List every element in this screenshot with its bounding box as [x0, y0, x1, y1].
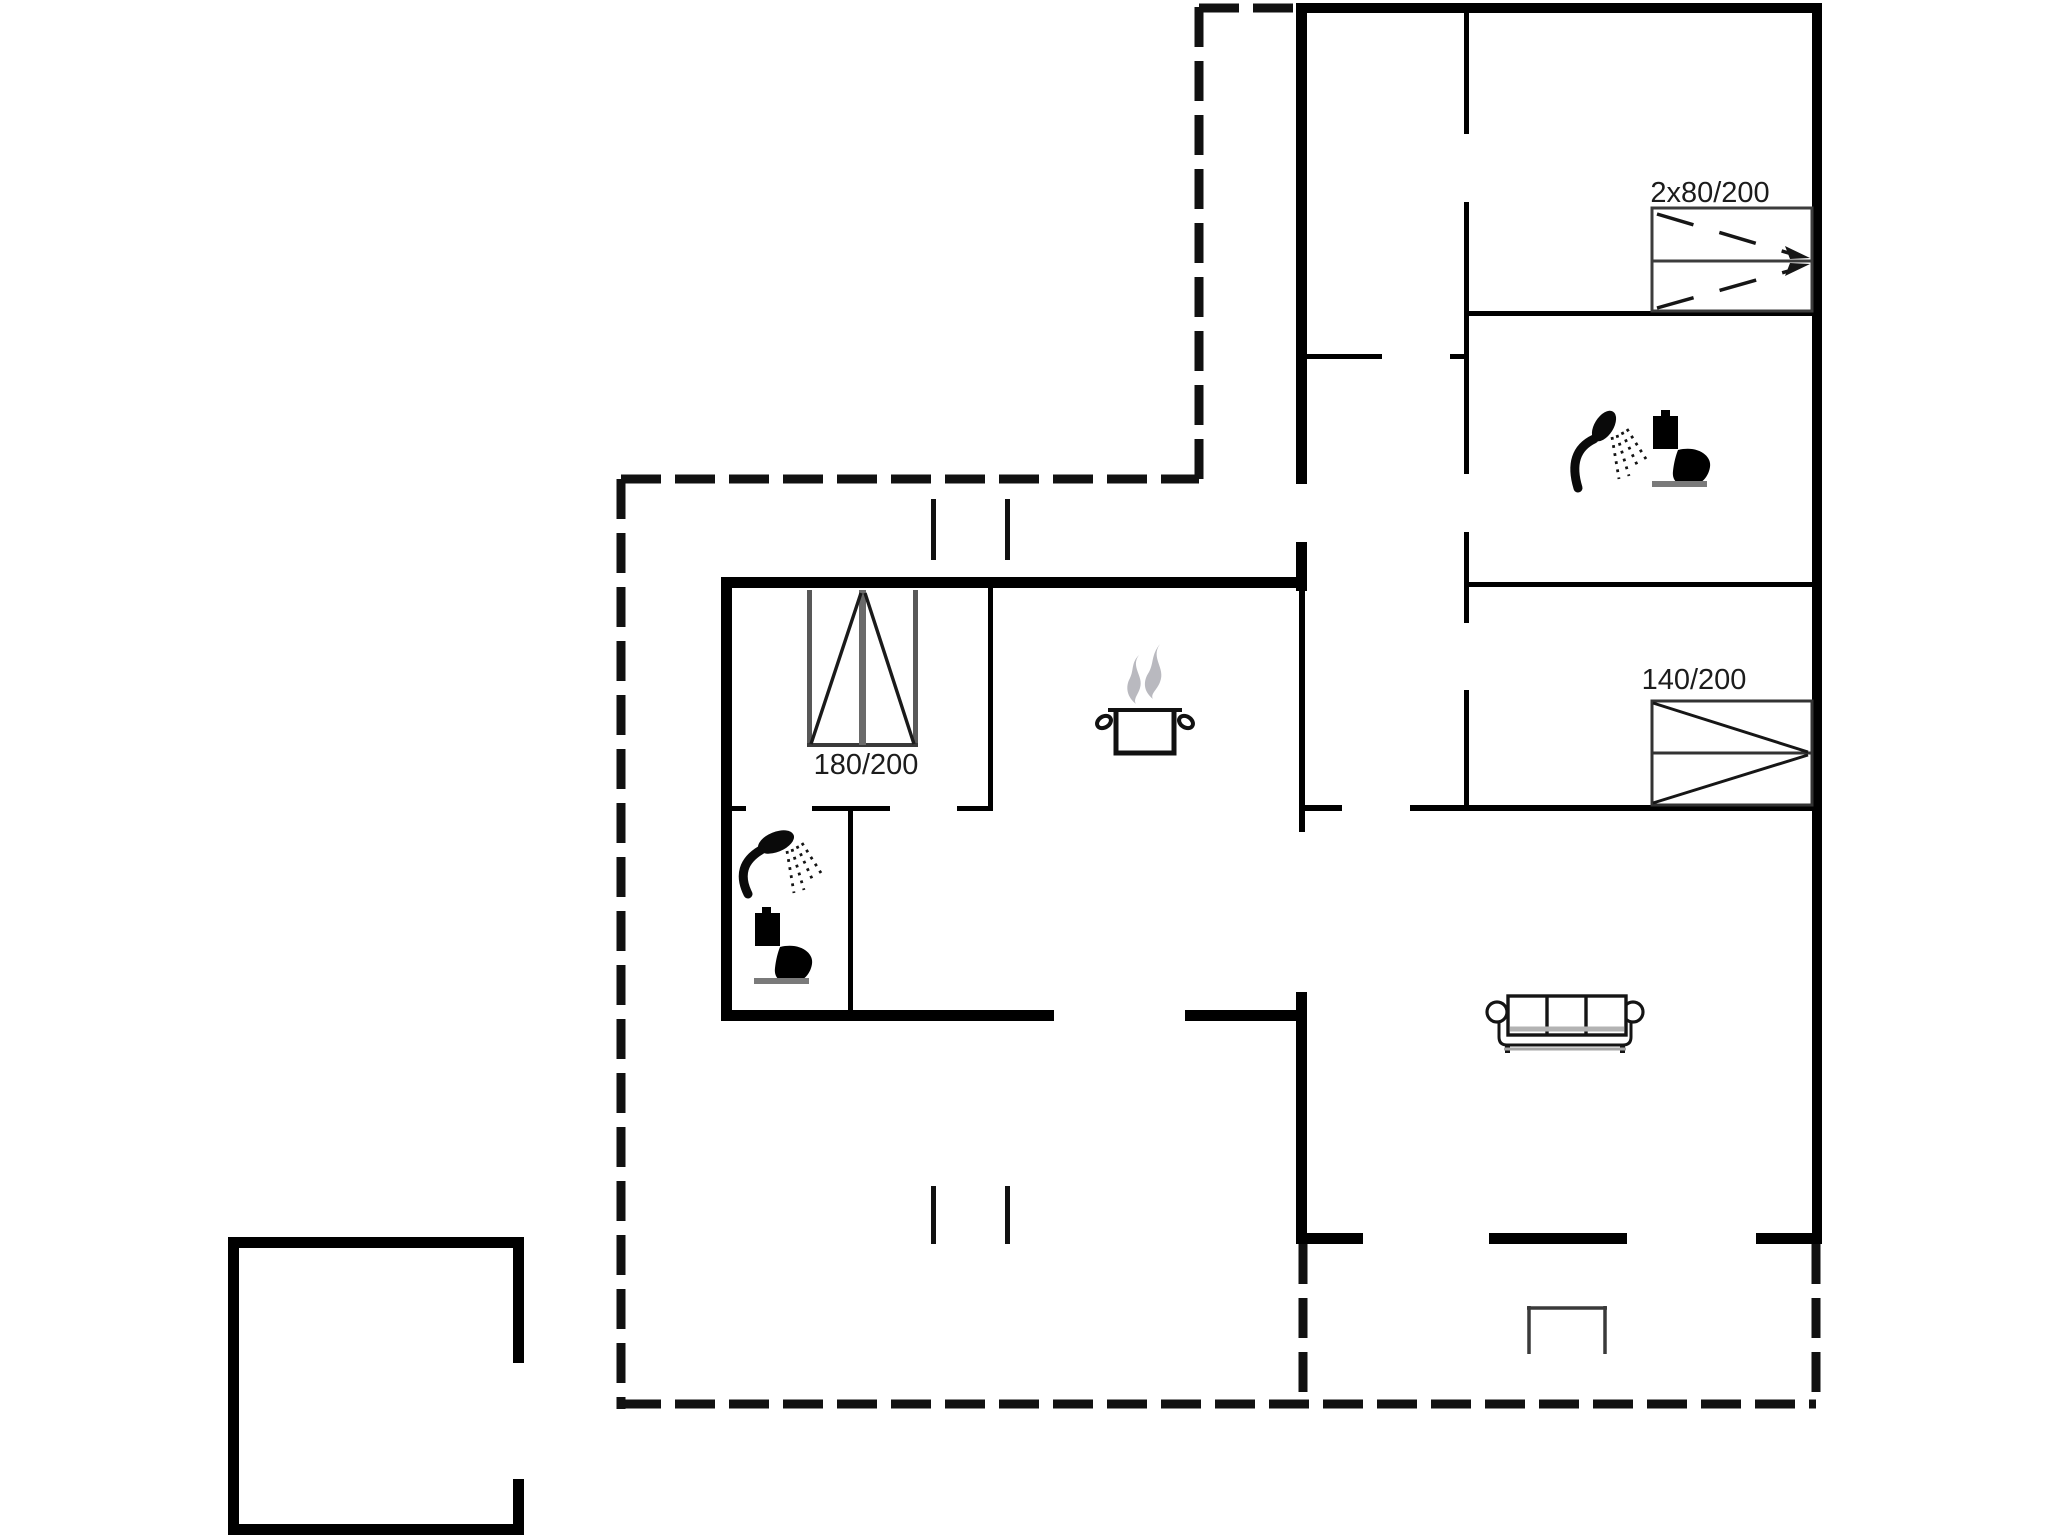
svg-text:180/200: 180/200	[814, 749, 919, 781]
svg-text:140/200: 140/200	[1642, 664, 1747, 696]
svg-text:2x80/200: 2x80/200	[1650, 177, 1769, 209]
